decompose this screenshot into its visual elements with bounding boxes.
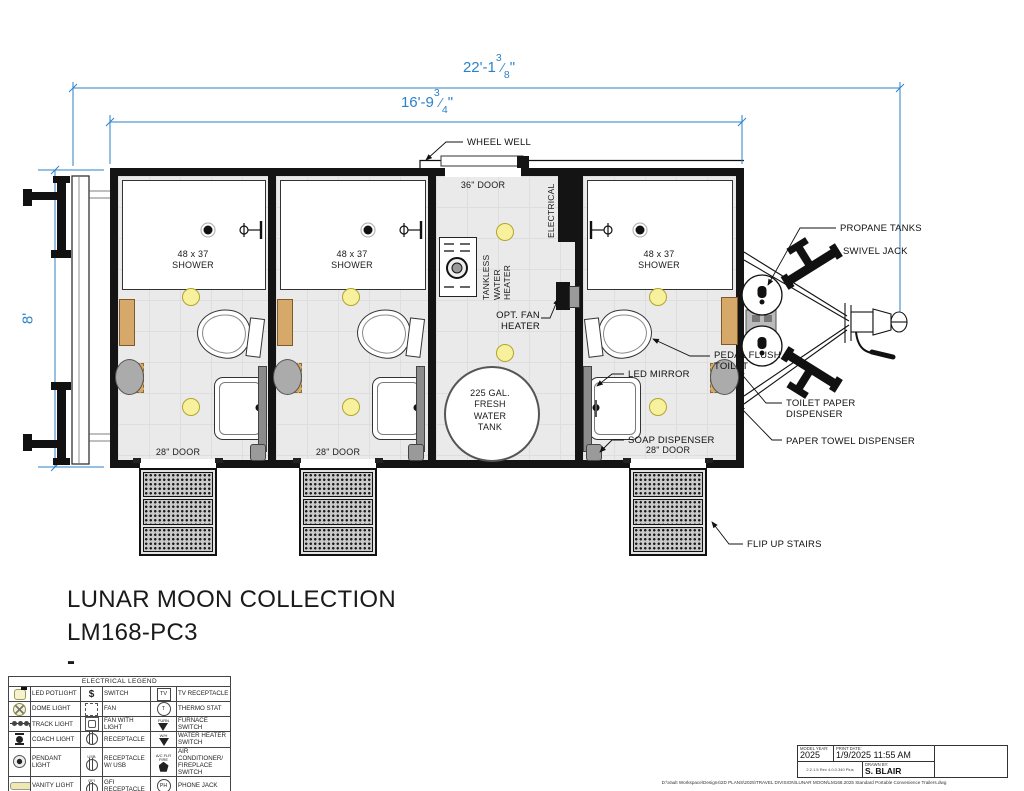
dimension-overall-length: 22'-13⁄8" [424, 57, 554, 79]
toilet-paper-dispenser-2 [277, 299, 293, 346]
thermostat-icon: T [157, 702, 171, 716]
wheel-well [420, 161, 744, 169]
dome-light-icon [13, 703, 26, 716]
stair-step [633, 499, 703, 524]
toilet-3-pedal-flush [583, 305, 655, 363]
fresh-water-tank-label: 225 GAL. FRESH WATER TANK [444, 388, 536, 433]
paper-towel-dispenser-2 [273, 359, 302, 395]
ac-fireplace-switch-icon: A/C FLR FIRE [152, 754, 175, 772]
toilet-paper-dispenser-3 [721, 297, 738, 345]
fan-icon [85, 703, 98, 716]
swivel-jack [769, 225, 842, 289]
title-dash: - [67, 648, 75, 676]
faucet-icon [591, 400, 601, 417]
drawn-by-value: S. BLAIR [863, 767, 934, 776]
dome-light [182, 398, 200, 416]
print-date-cell: PRINT DATE: 1/9/2025 11:55 AM [833, 745, 935, 762]
drawn-by-cell: DRAWN BY: S. BLAIR [862, 761, 935, 778]
vanity-light-icon [10, 782, 31, 790]
door-hinge [133, 458, 141, 463]
fan-with-light-icon [85, 717, 99, 731]
dome-light [649, 398, 667, 416]
model-year-cell: MODEL YEAR: 2025 [797, 745, 834, 762]
stair-step [143, 527, 213, 552]
door-hinge [293, 458, 301, 463]
dimension-body-width: 8' [20, 299, 37, 339]
soap-dispenser-callout: SOAP DISPENSER [628, 435, 715, 446]
toilet-2 [354, 305, 426, 363]
furnace-switch-icon: FURN [158, 719, 169, 731]
led-mirror-2 [416, 366, 425, 452]
track-light-icon [10, 719, 31, 729]
sink-3 [589, 377, 641, 440]
legend-row: LED POTLIGHT $SWITCH TVTV RECEPTACLE [9, 687, 231, 702]
door-28-opening-3 [630, 459, 706, 468]
shower-3-label: 48 x 37 SHOWER [587, 249, 731, 272]
legend-row: VANITY LIGHT GFIGFI RECEPTACLE PHPHONE J… [9, 777, 231, 791]
toilet-paper-dispenser-1 [119, 299, 135, 346]
propane-tanks-callout: PROPANE TANKS [840, 223, 922, 234]
door-28-label-3: 28" DOOR [630, 445, 706, 456]
shower-1-label: 48 x 37 SHOWER [122, 249, 264, 272]
version-cell: 2.2.1.5 Rev 4.0.0.340 Plus [797, 761, 863, 778]
soap-dispenser-1 [250, 444, 266, 461]
legend-row: TRACK LIGHT FAN WITH LIGHT FURNFURNACE S… [9, 717, 231, 732]
electrical-panel [558, 168, 583, 242]
shower-unit-1 [122, 180, 266, 290]
stair-step [303, 472, 373, 497]
legend-row: DOME LIGHT FAN TTHERMO STAT [9, 702, 231, 717]
door-28-opening-2 [300, 459, 376, 468]
led-mirror-3 [583, 366, 592, 452]
shower-unit-3 [587, 180, 733, 290]
model-year-value: 2025 [798, 751, 833, 761]
print-date-value: 1/9/2025 11:55 AM [834, 751, 934, 761]
stair-step [303, 527, 373, 552]
soap-dispenser-2 [408, 444, 424, 461]
opt-fan-heater-callout: OPT. FAN HEATER [455, 310, 540, 333]
led-mirror-1 [258, 366, 267, 452]
led-mirror-callout: LED MIRROR [628, 369, 690, 380]
flip-up-stairs-1 [139, 468, 217, 556]
entry-door-slab [441, 156, 529, 168]
stair-step [633, 527, 703, 552]
dome-light [496, 344, 514, 362]
tankless-water-heater [439, 237, 477, 297]
water-heater-switch-icon: W/H [159, 734, 169, 746]
dome-light [182, 288, 200, 306]
pedal-flush-toilet-callout: PEDAL FLUSH TOILET [714, 350, 794, 373]
opt-fan-heater-vent [569, 286, 580, 308]
door-28-opening-1 [140, 459, 216, 468]
dome-light [649, 288, 667, 306]
tv-receptacle-icon: TV [157, 688, 171, 701]
door-28-label-1: 28" DOOR [140, 447, 216, 458]
swivel-jack-callout: SWIVEL JACK [843, 246, 908, 257]
floor-plan-canvas: 22'-13⁄8" 16'-93⁄4" 8' 48 x 37 SHOWER 48… [0, 0, 1024, 791]
toilet-bowl [595, 306, 655, 361]
empty-cell [934, 745, 1008, 778]
dome-light [342, 398, 360, 416]
paper-towel-dispenser-1 [115, 359, 144, 395]
version-note: 2.2.1.5 Rev 4.0.0.340 Plus [798, 762, 862, 772]
door-28-label-2: 28" DOOR [300, 447, 376, 458]
usb-receptacle-icon: USB [86, 755, 98, 771]
rear-jack-bottom [23, 382, 71, 465]
shower-unit-2 [280, 180, 426, 290]
toilet-paper-dispenser-callout: TOILET PAPER DISPENSER [786, 398, 876, 421]
tankless-water-heater-label: TANKLESS WATER HEATER [481, 230, 513, 300]
electrical-label: ELECTRICAL [546, 174, 557, 238]
trailer-tongue [744, 252, 907, 404]
wheel-well-callout: WHEEL WELL [467, 137, 531, 148]
gfi-receptacle-icon: GFI [86, 779, 98, 791]
paper-towel-dispenser-callout: PAPER TOWEL DISPENSER [786, 436, 915, 447]
shower-2-label: 48 x 37 SHOWER [280, 249, 424, 272]
electrical-legend: ELECTRICAL LEGEND LED POTLIGHT $SWITCH T… [8, 676, 231, 791]
door-latch [375, 458, 383, 463]
coach-light-icon [15, 733, 24, 746]
collection-title: LUNAR MOON COLLECTION [67, 586, 396, 614]
door-36-opening [445, 168, 521, 177]
opt-fan-heater [556, 282, 570, 310]
pendant-light-icon [13, 755, 26, 768]
phone-jack-icon: PH [157, 779, 171, 791]
legend-row: PENDANT LIGHT USBRECEPTACLE W/ USB A/C F… [9, 747, 231, 777]
model-number: LM168-PC3 [67, 619, 198, 647]
dome-light [342, 288, 360, 306]
stair-step [143, 499, 213, 524]
rear-bumper [72, 176, 110, 464]
stair-step [143, 472, 213, 497]
toilet-1 [194, 305, 266, 363]
led-potlight-icon [14, 689, 26, 700]
flip-up-stairs-2 [299, 468, 377, 556]
stair-step [303, 499, 373, 524]
legend-row: COACH LIGHT RECEPTACLE W/HWATER HEATER S… [9, 732, 231, 747]
door-latch [705, 458, 713, 463]
legend-title: ELECTRICAL LEGEND [9, 677, 231, 687]
file-path: D:\Vault Workspace\Designs\2D PLANS\2025… [590, 780, 1018, 785]
door-hinge [623, 458, 631, 463]
soap-dispenser-3 [586, 444, 602, 461]
stair-step [633, 472, 703, 497]
switch-icon: $ [89, 689, 95, 700]
receptacle-icon [86, 733, 98, 745]
dimension-box-length: 16'-93⁄4" [362, 92, 492, 114]
title-block: MODEL YEAR: 2025 PRINT DATE: 1/9/2025 11… [797, 745, 1008, 778]
rear-jack-top [23, 176, 71, 258]
flip-up-stairs-3 [629, 468, 707, 556]
door-36-label: 36" DOOR [443, 180, 523, 191]
door-latch [215, 458, 223, 463]
flip-up-stairs-callout: FLIP UP STAIRS [747, 539, 822, 550]
